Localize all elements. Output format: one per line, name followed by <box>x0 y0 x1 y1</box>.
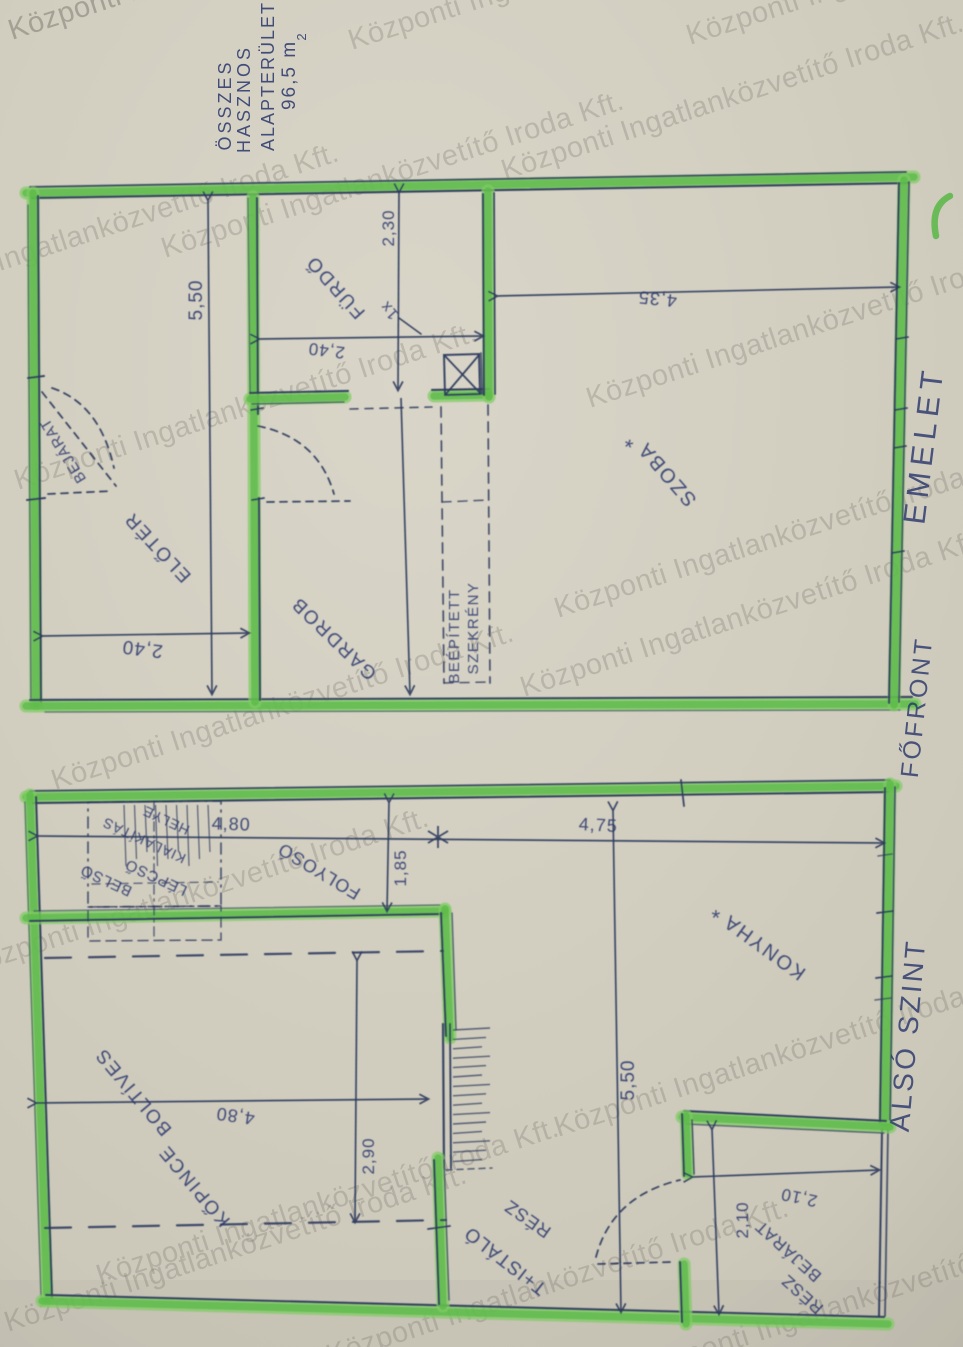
svg-text:96,5 m: 96,5 m <box>279 40 300 110</box>
svg-text:4,35: 4,35 <box>637 287 678 311</box>
svg-text:2,30: 2,30 <box>379 209 398 246</box>
svg-text:2: 2 <box>294 33 309 40</box>
svg-text:2,10: 2,10 <box>733 1201 752 1238</box>
svg-text:5,50: 5,50 <box>186 280 207 321</box>
svg-text:5,50: 5,50 <box>618 1060 639 1101</box>
svg-text:HASZNOS: HASZNOS <box>234 45 254 153</box>
svg-text:2,90: 2,90 <box>359 1137 378 1174</box>
svg-text:ALAPTERÜLET: ALAPTERÜLET <box>258 1 278 151</box>
svg-text:1,85: 1,85 <box>391 849 410 886</box>
svg-text:BEÉPÍTETT: BEÉPÍTETT <box>446 588 463 683</box>
svg-text:SZEKRÉNY: SZEKRÉNY <box>465 582 482 675</box>
svg-text:ÖSSZES: ÖSSZES <box>215 59 235 150</box>
svg-text:4,80: 4,80 <box>211 813 251 834</box>
